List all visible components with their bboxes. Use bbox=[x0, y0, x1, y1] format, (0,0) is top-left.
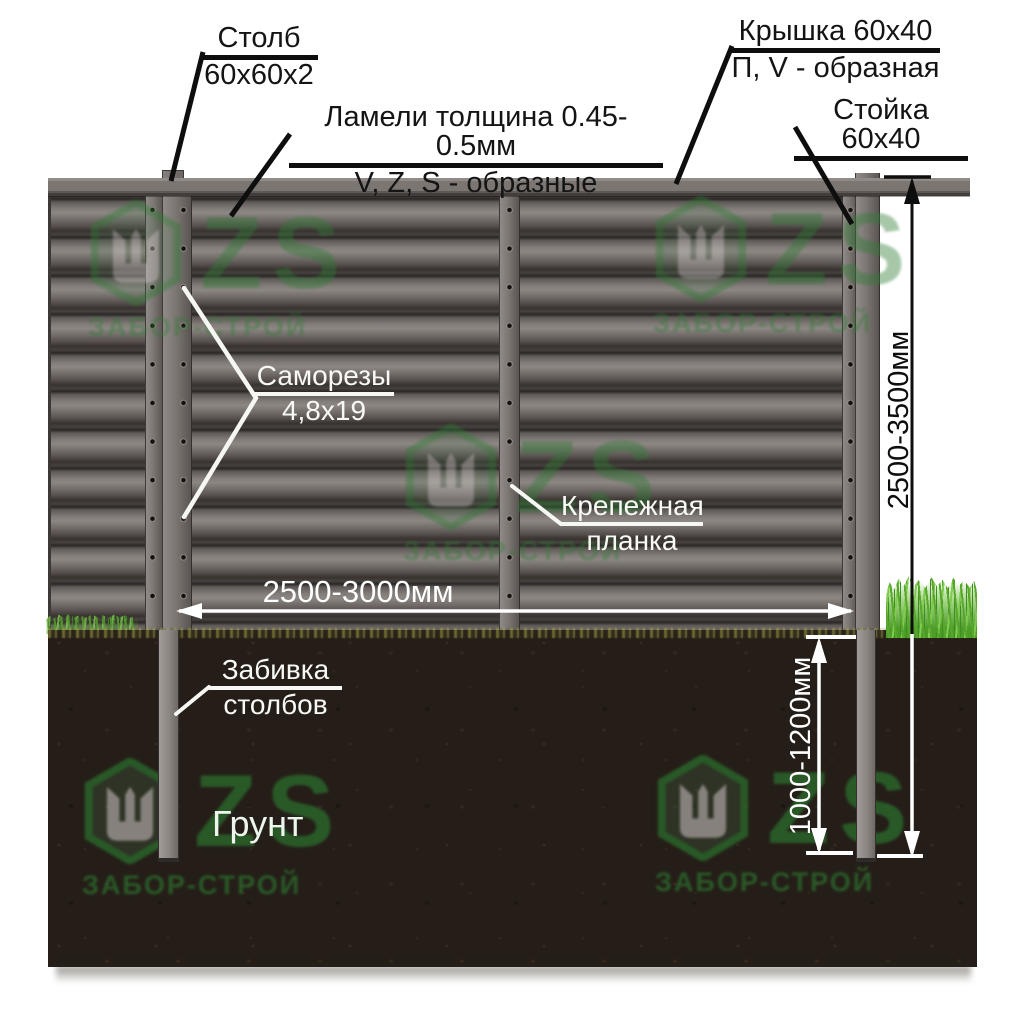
callout-zabivka: Забивка столбов bbox=[209, 656, 342, 719]
dim-depth-label: 1000-1200мм bbox=[785, 646, 815, 846]
leader-kryshka bbox=[676, 46, 732, 184]
samorezy-label-line1: Саморезы bbox=[254, 362, 394, 390]
dim-height-label: 2500-3500мм bbox=[883, 320, 913, 520]
lameli-label-line1: Ламели толщина 0.45-0.5мм bbox=[289, 103, 663, 161]
callout-stolb: Столб 60х60х2 bbox=[200, 24, 318, 90]
leader-samorezy-up bbox=[184, 288, 256, 398]
zabivka-label-line1: Забивка bbox=[209, 656, 342, 684]
lameli-label-line2: V, Z, S - образные bbox=[289, 169, 663, 198]
leader-krepezh bbox=[512, 486, 561, 524]
stoyka-label-line1: Стойка 60х40 bbox=[794, 96, 968, 154]
dim-height-arrow-down bbox=[904, 831, 920, 858]
dim-height-arrow-up bbox=[904, 177, 920, 204]
stolb-label-line2: 60х60х2 bbox=[200, 61, 318, 90]
fence-construction-diagram: ZS ЗАБОР-СТРОЙ ZS ЗАБОР-СТРОЙ ZS ЗАБОР-С… bbox=[0, 0, 1024, 1024]
stolb-label-line1: Столб bbox=[200, 24, 318, 53]
dim-width-label: 2500-3000мм bbox=[247, 574, 469, 610]
callout-krepezhnaya: Крепежная планка bbox=[561, 492, 703, 555]
callout-kryshka: Крышка 60х40 П, V - образная bbox=[731, 17, 940, 83]
krepezhnaya-label-line2: планка bbox=[561, 527, 703, 555]
callout-samorezy: Саморезы 4,8х19 bbox=[254, 362, 394, 425]
dim-width-arrow-right bbox=[828, 603, 854, 619]
callout-lameli: Ламели толщина 0.45-0.5мм V, Z, S - обра… bbox=[289, 103, 663, 198]
stoyka-underline bbox=[794, 156, 968, 161]
krepezhnaya-label-line1: Крепежная bbox=[561, 492, 703, 520]
kryshka-label-line2: П, V - образная bbox=[731, 54, 940, 83]
samorezy-label-line2: 4,8х19 bbox=[254, 397, 394, 425]
callout-stoyka: Стойка 60х40 bbox=[794, 96, 968, 162]
dim-width-arrow-left bbox=[176, 603, 202, 619]
leader-lameli bbox=[231, 134, 290, 216]
zabivka-label-line2: столбов bbox=[209, 691, 342, 719]
leader-stolb bbox=[171, 52, 203, 181]
leader-zabivka bbox=[176, 687, 209, 714]
grunt-label: Грунт bbox=[212, 803, 303, 845]
kryshka-label-line1: Крышка 60х40 bbox=[731, 17, 940, 46]
leader-samorezy-down bbox=[184, 398, 256, 517]
